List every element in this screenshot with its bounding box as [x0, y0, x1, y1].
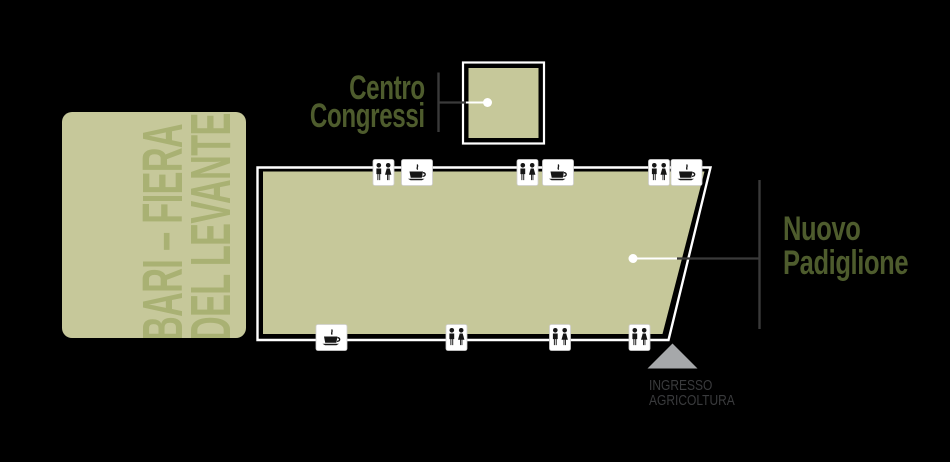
restroom-icon — [629, 325, 650, 351]
venue-name-block: BARI – FIERA DEL LEVANTE — [62, 112, 246, 338]
restroom-icon — [373, 160, 394, 186]
entrance-label-line2: AGRICOLTURA — [649, 393, 735, 408]
coffee-cup-icon — [316, 325, 347, 351]
nuovo-padiglione-shape[interactable] — [263, 172, 705, 335]
restroom-icon — [517, 160, 538, 186]
nuovo-padiglione-label-line2: Padiglione — [783, 246, 908, 280]
coffee-cup-icon — [402, 160, 433, 186]
restroom-icon — [550, 325, 571, 351]
centro-congressi-marker-dot — [483, 98, 492, 107]
nuovo-padiglione-label: Nuovo Padiglione — [783, 212, 908, 280]
entrance-label-line1: INGRESSO — [649, 378, 735, 393]
venue-name-line2: DEL LEVANTE — [187, 113, 235, 338]
restroom-icon — [649, 160, 670, 186]
coffee-cup-icon — [671, 160, 702, 186]
venue-name-text: BARI – FIERA DEL LEVANTE — [139, 113, 235, 338]
venue-map: BARI – FIERA DEL LEVANTE Centro Congress… — [0, 0, 950, 462]
centro-congressi-label: Centro Congressi — [310, 74, 425, 130]
entrance-label: INGRESSO AGRICOLTURA — [649, 378, 735, 408]
coffee-cup-icon — [543, 160, 574, 186]
centro-congressi-label-line2: Congressi — [310, 102, 425, 130]
entrance-arrow-icon — [648, 344, 698, 369]
restroom-icon — [446, 325, 467, 351]
nuovo-padiglione-label-line1: Nuovo — [783, 212, 908, 246]
